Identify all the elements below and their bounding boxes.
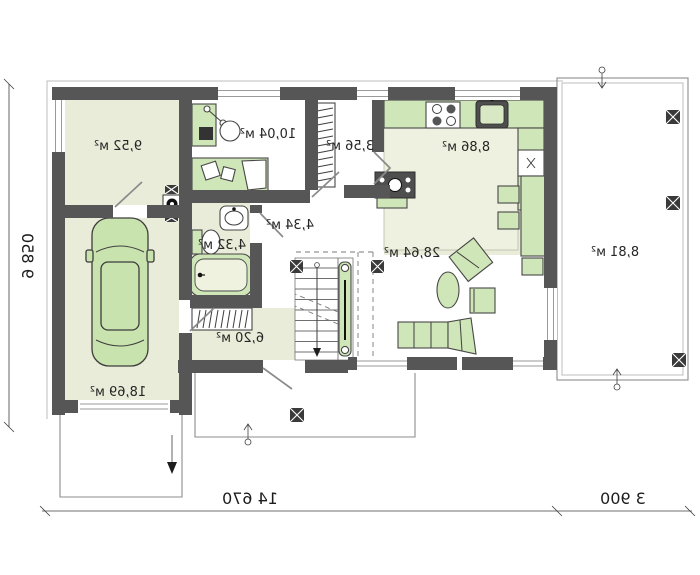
window-mullion	[457, 357, 462, 370]
post-column-icon	[371, 260, 384, 273]
window	[52, 100, 65, 152]
window	[513, 357, 543, 370]
pantry-area-label: 3,56 м²	[326, 139, 374, 154]
terrace-inner-line	[562, 83, 683, 375]
staircase	[292, 252, 373, 360]
window	[218, 87, 280, 100]
garage-area-label: 18,69 м²	[90, 385, 146, 400]
terrace	[557, 67, 688, 390]
entrance-door-leaf	[263, 368, 292, 389]
stool-icon	[220, 121, 240, 141]
handrail-icon	[339, 262, 351, 356]
window	[357, 87, 388, 100]
coffee-table-icon	[437, 272, 459, 308]
chair-icon	[498, 186, 519, 203]
driveway-outline	[60, 413, 182, 497]
coat-rack-icon	[192, 308, 252, 330]
house-depth-dimension: 9 850	[18, 233, 37, 279]
bathroom-area-label: 4,32 м²	[198, 238, 246, 253]
window	[455, 87, 520, 100]
floor-plan-canvas: 9,52 м² 18,69 м² 10,04 м² 3,56 м² 8,86 м…	[0, 0, 700, 575]
corner-sofa-icon	[398, 318, 476, 354]
post-column-icon	[290, 260, 303, 273]
office-area-label: 10,04 м²	[240, 127, 296, 142]
car-icon	[86, 218, 154, 366]
bed-icon	[192, 158, 268, 192]
garage-door	[80, 404, 168, 409]
floor-plan-drawing: 9,52 м² 18,69 м² 10,04 м² 3,56 м² 8,86 м…	[0, 0, 700, 575]
kitchen-sink-icon	[476, 96, 508, 128]
living-area-label: 28,64 м²	[384, 246, 440, 261]
driveway-arrow-icon	[167, 435, 177, 474]
terrace-column-icon	[666, 110, 680, 124]
porch-outline	[195, 373, 415, 437]
hall-area-label: 4,34 м²	[266, 218, 314, 233]
storage-area-label: 9,52 м²	[94, 139, 142, 154]
terrace-column-icon	[672, 353, 686, 367]
house-width-dimension: 14 670	[222, 489, 278, 508]
chair-icon	[498, 212, 519, 229]
porch-arrow-icon	[244, 424, 252, 445]
chair-icon	[522, 258, 543, 275]
window	[357, 357, 407, 370]
entrance-porch	[195, 373, 415, 445]
fridge-icon	[518, 150, 544, 176]
stove-icon	[426, 102, 460, 128]
vestibule-area-label: 6,20 м²	[216, 331, 264, 346]
terrace-column-icon	[666, 196, 680, 210]
bathtub-icon	[190, 254, 252, 296]
terrace-door	[544, 288, 557, 340]
dining-table-icon	[498, 176, 545, 275]
terrace-width-dimension: 3 900	[600, 489, 646, 508]
porch-column-icon	[290, 408, 304, 422]
washbasin-icon	[220, 206, 248, 230]
driveway	[60, 413, 182, 497]
side-chair-icon	[470, 288, 495, 313]
desk-icon	[192, 104, 226, 146]
terrace-area-label: 8,81 м²	[591, 245, 639, 260]
kitchen-area-label: 8,86 м²	[442, 140, 490, 155]
